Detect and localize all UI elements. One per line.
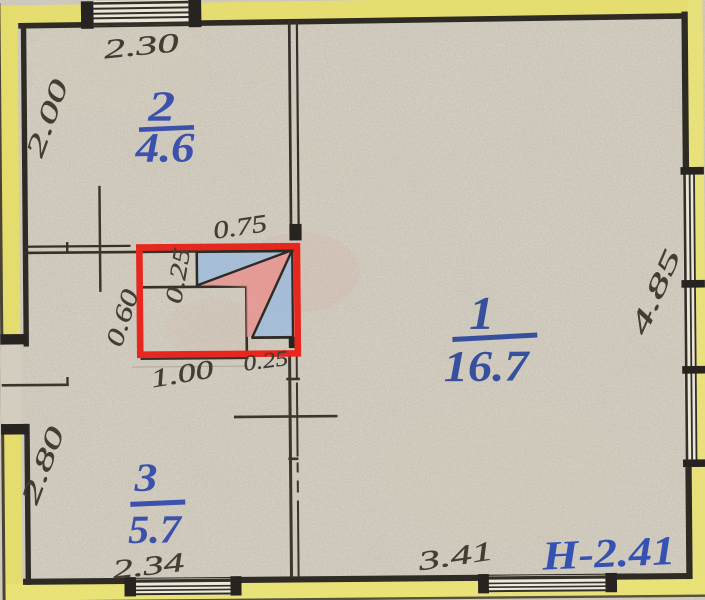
svg-text:16.7: 16.7: [443, 341, 531, 391]
svg-text:5.7: 5.7: [128, 506, 184, 551]
svg-text:2: 2: [147, 84, 176, 131]
svg-text:3: 3: [133, 455, 158, 500]
svg-text:1: 1: [469, 288, 494, 340]
svg-text:4.6: 4.6: [134, 125, 195, 172]
svg-text:Н-2.41: Н-2.41: [540, 527, 676, 579]
